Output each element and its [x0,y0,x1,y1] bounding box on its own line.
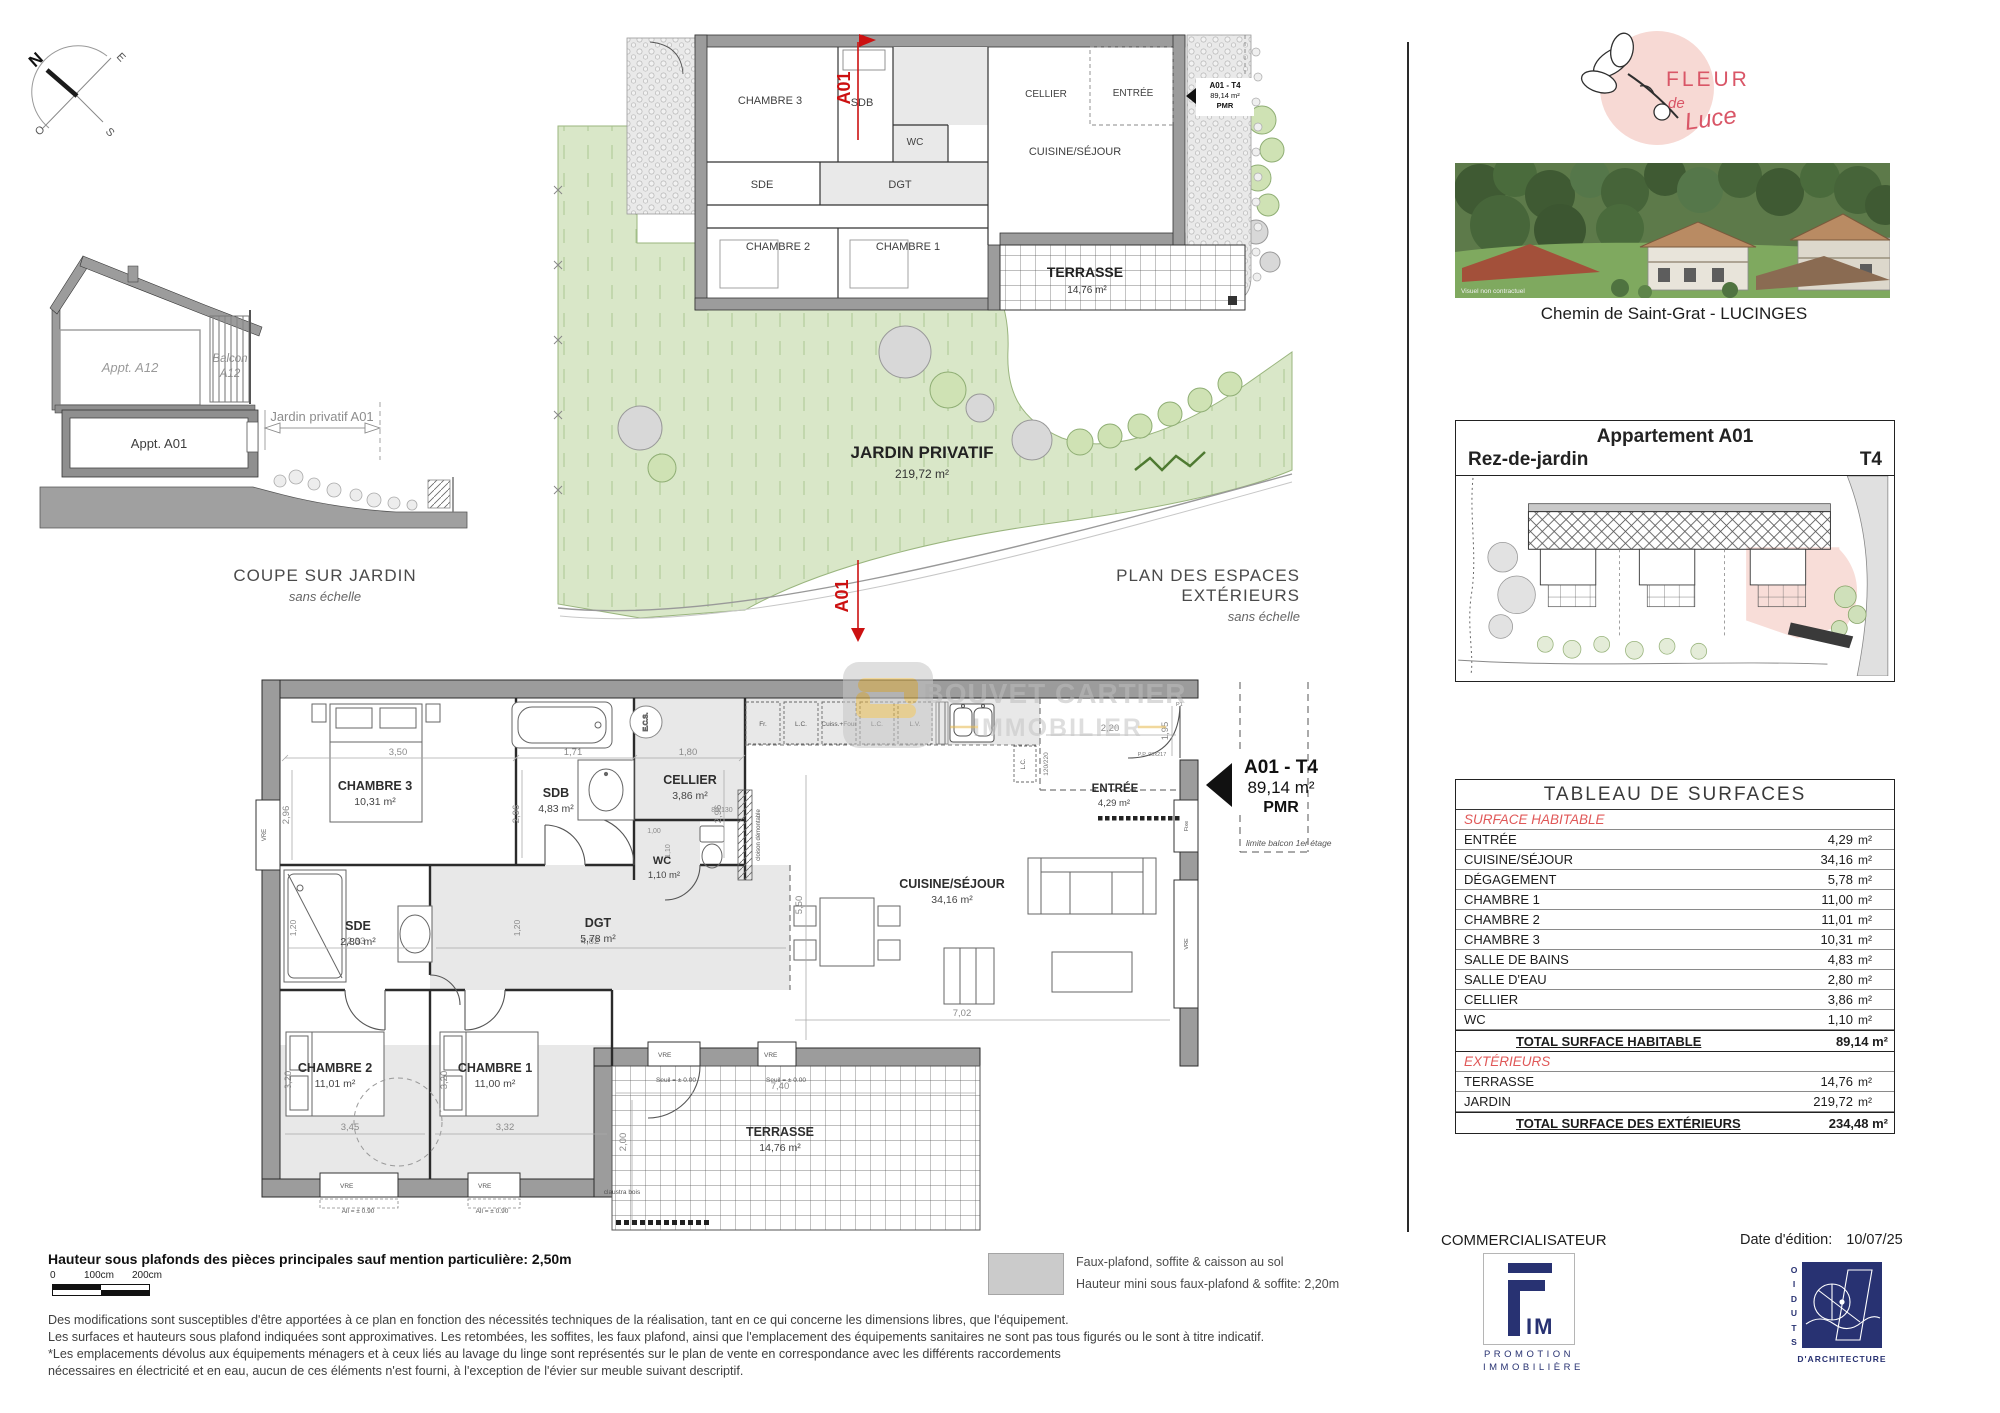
unit-tag: A01 - T4 89,14 m² PMR limite balcon 1er … [1206,682,1332,852]
table-section-row: SURFACE HABITABLE [1456,810,1894,830]
table-cell-value: 4,29 [1783,832,1853,847]
project-address: Chemin de Saint-Grat - LUCINGES [1455,304,1893,324]
surface-table: TABLEAU DE SURFACES SURFACE HABITABLEENT… [1455,779,1895,1134]
room-cellier-name: CELLIER [663,773,716,787]
allege-ch2: All = ± 0.90 [342,1208,375,1215]
water-heater-icon: E.C.S. [630,706,662,738]
vertical-divider [1407,42,1409,1232]
unit-tag-line3: PMR [1263,799,1299,816]
surface-table-rows: SURFACE HABITABLEENTRÉE4,29m²CUISINE/SÉJ… [1456,810,1894,1133]
table-cell-value: 2,80 [1783,972,1853,987]
studio-architecture-logo [1802,1262,1882,1348]
table-cell-unit: m² [1853,833,1894,847]
scale-bar-graphic [52,1284,150,1296]
table-row: JARDIN219,72m² [1456,1092,1894,1112]
table-cell-unit: m² [1853,1095,1894,1109]
fim-im-text: IM [1526,1314,1554,1339]
room-sdb-area: 4,83 m² [538,803,574,815]
room-chambre3-name: CHAMBRE 3 [338,779,412,793]
exterior-plan-subtitle: sans échelle [1000,609,1300,624]
dim-296-b: 2,96 [511,805,522,824]
entry-dashes [1098,816,1180,821]
table-cell-unit: m² [1853,973,1894,987]
legend-swatch [988,1253,1064,1295]
exterior-plan-caption: PLAN DES ESPACES EXTÉRIEURS sans échelle [1000,566,1300,624]
compass-north-label: N [25,49,47,71]
scale-tick-0: 0 [50,1270,56,1281]
ext-cuisine-label: CUISINE/SÉJOUR [1029,145,1121,158]
window-vre-left: VRE [262,829,268,841]
coupe-caption: COUPE SUR JARDIN sans échelle [175,566,475,604]
site-plan [1456,476,1890,676]
table-row: TERRASSE14,76m² [1456,1072,1894,1092]
disclaimer-line2: Les surfaces et hauteurs sous plafond in… [48,1329,1388,1346]
brand-fleur: FLEUR [1666,68,1750,91]
table-section-row: EXTÉRIEURS [1456,1052,1894,1072]
site-trees-left [1488,542,1536,638]
coupe-title: COUPE SUR JARDIN [175,566,475,586]
main-floor-plan: cloison démontable VRE VRE VRE VRE VRE F… [240,655,1360,1255]
table-row: CHAMBRE 111,00m² [1456,890,1894,910]
window-fixe-right: Fixe [1184,821,1190,831]
unit-card-level: Rez-de-jardin [1468,449,1588,471]
dim-120-220: 120/220 [1043,752,1050,776]
ext-sdb-label: SDB [851,97,874,109]
fim-logo: IM [1483,1253,1575,1345]
plot-boundary [1470,478,1474,674]
tv-unit-icon [944,948,994,1004]
unit-tag-line2: 89,14 m² [1247,778,1314,797]
ext-terrasse-area: 14,76 m² [1067,285,1107,296]
table-section-label: EXTÉRIEURS [1456,1054,1894,1069]
dim-332: 3,32 [496,1122,515,1133]
room-chambre1-area: 11,00 m² [475,1078,516,1090]
compass-south-label: S [103,126,117,140]
room-cuisine-name: CUISINE/SÉJOUR [899,876,1005,891]
table-cell-unit: m² [1853,933,1894,947]
seuil-1: Seuil = ± 0.00 [656,1077,696,1084]
ext-unit-tag-line2: 89,14 m² [1210,91,1240,100]
room-sde-area: 2,80 m² [340,936,376,948]
ground-section [40,487,467,528]
photo-caption: Visuel non contractuel [1461,288,1525,295]
dim-320-a: 3,20 [283,1071,294,1090]
ext-unit-tag-line1: A01 - T4 [1209,81,1241,90]
watermark-line1: BOUVET CARTIER [924,678,1187,709]
balcony-section: Balcon A12 [210,310,250,404]
site-ground-line [1458,660,1827,664]
room-wc-name: WC [653,855,671,867]
dim-120-b: 1,20 [512,919,522,936]
edition-date-value: 10/07/25 [1846,1232,1902,1248]
room-dgt-area: 5,78 m² [580,933,616,945]
scale-bar: 0 100cm 200cm [50,1270,190,1298]
sink-icon-sdb [578,760,634,820]
table-row: CUISINE/SÉJOUR34,16m² [1456,850,1894,870]
ceiling-height-note: Hauteur sous plafonds des pièces princip… [48,1251,572,1267]
scale-tick-100: 100cm [84,1270,114,1281]
claustra-label: claustra bois [604,1189,641,1196]
dining-table-icon [794,898,900,966]
studio-vertical-text: OIDUTS [1788,1265,1800,1347]
site-building [1528,512,1830,550]
table-row: DÉGAGEMENT5,78m² [1456,870,1894,890]
dim-296-a: 2,96 [281,806,292,825]
table-row: CHAMBRE 211,01m² [1456,910,1894,930]
room-cellier-area: 3,86 m² [672,790,708,802]
table-cell-unit: m² [1853,993,1894,1007]
dim-350: 3,50 [389,747,408,758]
table-row: ENTRÉE4,29m² [1456,830,1894,850]
window-vre-ch1: VRE [478,1183,492,1190]
unit-card: Appartement A01 Rez-de-jardin T4 [1455,420,1895,682]
kitchen-lc1-label: L.C. [795,721,807,728]
garden-label: JARDIN PRIVATIF [851,443,994,462]
dim-100: 1,00 [647,828,661,835]
limite-balcon-label: limite balcon 1er étage [1246,838,1332,848]
plan-sheet: N E S O Appt. A12 Balcon A12 [0,0,2000,1413]
room-dgt-name: DGT [585,916,612,930]
table-section-label: SURFACE HABITABLE [1456,812,1894,827]
ext-wc-label: WC [907,137,924,148]
ext-dgt-label: DGT [888,179,912,191]
dim-702: 7,02 [953,1008,972,1019]
ext-chambre3-label: CHAMBRE 3 [738,95,802,107]
commercialisateur-label: COMMERCIALISATEUR [1441,1232,1607,1249]
window-vre-sejour2: VRE [764,1052,778,1059]
dim-320-b: 3,20 [439,1071,450,1090]
brand-logo: FLEUR de Luce [1572,18,1752,160]
table-cell-value: 5,78 [1783,872,1853,887]
exterior-plan-title: PLAN DES ESPACES EXTÉRIEURS [1000,566,1300,606]
section-line-bottom: A01 [832,560,865,642]
table-cell-unit: m² [1853,953,1894,967]
table-cell-label: SALLE D'EAU [1456,972,1783,987]
table-cell-value: 11,01 [1783,912,1853,927]
compass-rose-icon: N E S O [15,30,145,150]
table-cell-label: DÉGAGEMENT [1456,872,1783,887]
balcony-label-line2: A12 [219,368,241,380]
room-entree-area: 4,29 m² [1098,798,1130,809]
window-vre-ch2: VRE [340,1183,354,1190]
window-vre-sejour1: VRE [658,1052,672,1059]
allege-ch1: All = ± 0.90 [476,1208,509,1215]
ext-entree-label: ENTRÉE [1113,86,1154,99]
ext-unit-tag-line3: PMR [1217,101,1234,110]
ext-cellier-label: CELLIER [1025,89,1067,100]
cloison-label: cloison démontable [756,808,762,860]
table-row: CELLIER3,86m² [1456,990,1894,1010]
table-total-value: 89,14 m² [1768,1034,1894,1049]
table-row: SALLE DE BAINS4,83m² [1456,950,1894,970]
dim-80-130: 80/130 [711,807,733,814]
ecs-label: E.C.S. [643,712,650,731]
window-vre-right: VRE [1184,938,1190,950]
room-entree-name: ENTRÉE [1092,782,1139,795]
table-cell-unit: m² [1853,853,1894,867]
fim-baseline: PROMOTION IMMOBILIÈRE [1483,1348,1575,1374]
scale-seg-4 [101,1290,149,1295]
table-cell-unit: m² [1853,1075,1894,1089]
section-mark-bottom: A01 [832,579,852,612]
bathtub-icon [512,702,612,748]
table-cell-value: 219,72 [1783,1094,1853,1109]
unit-tag-line1: A01 - T4 [1244,757,1318,778]
site-units [1540,549,1805,585]
table-cell-unit: m² [1853,873,1894,887]
room-chambre2-name: CHAMBRE 2 [298,1061,372,1075]
unit-card-type: T4 [1860,449,1882,471]
sofa-icon [1028,858,1156,914]
compass-east-label: E [114,51,128,65]
garden-area: 219,72 m² [895,467,949,481]
entrance-door-size: P.P. 93x217 [1138,752,1167,758]
table-row: SALLE D'EAU2,80m² [1456,970,1894,990]
table-cell-label: CHAMBRE 2 [1456,912,1783,927]
room-cuisine-area: 34,16 m² [931,894,973,906]
table-total-value: 234,48 m² [1768,1116,1894,1131]
garden-section-drawing: Appt. A12 Balcon A12 Appt. A01 Jardin pr… [35,200,505,530]
exterior-spaces-plan: CHAMBRE 3 SDB CELLIER WC SDE DGT CHAMBRE… [545,25,1305,655]
lower-apartment-label: Appt. A01 [131,436,187,451]
kitchen-fr-label: Fr. [759,721,767,728]
project-photo: Visuel non contractuel [1455,163,1890,298]
table-cell-value: 3,86 [1783,992,1853,1007]
table-total-label: TOTAL SURFACE HABITABLE [1456,1034,1768,1049]
garden-dim-label: Jardin privatif A01 [270,409,373,424]
disclaimer-line1: Des modifications sont susceptibles d'êt… [48,1312,1388,1329]
legend-line2: Hauteur mini sous faux-plafond & soffite… [1076,1277,1339,1291]
fence-icon [428,477,453,512]
table-total-row: TOTAL SURFACE DES EXTÉRIEURS234,48 m² [1456,1112,1894,1133]
room-chambre1-name: CHAMBRE 1 [458,1061,532,1075]
site-building-roofline [1528,504,1830,512]
ext-terrasse-label: TERRASSE [1047,264,1123,280]
legend-line1: Faux-plafond, soffite & caisson au sol [1076,1255,1284,1269]
table-cell-value: 34,16 [1783,852,1853,867]
table-cell-value: 14,76 [1783,1074,1853,1089]
room-sdb-name: SDB [543,786,569,800]
table-row: CHAMBRE 310,31m² [1456,930,1894,950]
kitchen-lc-tall-label: L.C. [1021,758,1027,769]
coupe-subtitle: sans échelle [175,589,475,604]
disclaimer-line3: *Les emplacements dévolus aux équipement… [48,1346,1388,1363]
sink-icon-sde [398,906,432,962]
dim-550: 5,50 [794,896,805,915]
room-terrasse-area: 14,76 m² [759,1142,801,1154]
coffee-table-icon [1052,952,1132,992]
section-mark-top: A01 [834,71,854,104]
fim-baseline-line1: PROMOTION [1483,1348,1575,1361]
dim-120-a: 1,20 [288,919,298,936]
table-cell-label: CHAMBRE 3 [1456,932,1783,947]
room-wc-area: 1,10 m² [648,870,680,881]
room-chambre2-area: 11,01 m² [315,1078,356,1090]
table-cell-label: WC [1456,1012,1783,1027]
table-cell-value: 4,83 [1783,952,1853,967]
table-cell-unit: m² [1853,913,1894,927]
table-cell-label: ENTRÉE [1456,832,1783,847]
table-cell-label: CUISINE/SÉJOUR [1456,852,1783,867]
watermark: BOUVET CARTIER IMMOBILIER [843,662,1186,748]
table-cell-value: 10,31 [1783,932,1853,947]
dim-180: 1,80 [679,747,698,758]
surface-table-title: TABLEAU DE SURFACES [1456,780,1894,810]
scale-tick-200: 200cm [132,1270,162,1281]
balcony-label-line1: Balcon [212,353,247,365]
room-sde-name: SDE [345,919,371,933]
table-cell-value: 11,00 [1783,892,1853,907]
disclaimer-line4: nécessaires en électricité et en eau, au… [48,1363,1388,1380]
room-terrasse-name: TERRASSE [746,1125,814,1139]
ext-chambre2-label: CHAMBRE 2 [746,241,810,253]
dim-171: 1,71 [564,747,583,758]
seuil-2: Seuil = ± 0.00 [766,1077,806,1084]
ext-chambre1-label: CHAMBRE 1 [876,241,940,253]
unit-card-title: Appartement A01 [1456,421,1894,448]
upper-apartment-label: Appt. A12 [101,360,159,375]
dim-200: 2,00 [618,1133,629,1152]
table-cell-label: CHAMBRE 1 [1456,892,1783,907]
studio-architecture-label: D'ARCHITECTURE [1790,1354,1894,1364]
unit-arrow-icon [1206,763,1232,807]
scale-seg-3 [53,1290,101,1295]
dim-195: 1,95 [1160,722,1171,741]
pebble-courtyard [627,38,697,214]
table-total-label: TOTAL SURFACE DES EXTÉRIEURS [1456,1116,1768,1131]
table-cell-label: CELLIER [1456,992,1783,1007]
edition-date-label: Date d'édition: [1740,1232,1832,1248]
table-cell-unit: m² [1853,893,1894,907]
table-cell-label: JARDIN [1456,1094,1783,1109]
site-trees-bottom [1537,636,1706,659]
ext-sde-label: SDE [751,179,774,191]
fim-baseline-line2: IMMOBILIÈRE [1483,1361,1575,1374]
site-terraces [1548,585,1805,607]
room-chambre3-area: 10,31 m² [354,796,396,808]
table-cell-value: 1,10 [1783,1012,1853,1027]
table-row: WC1,10m² [1456,1010,1894,1030]
edition-date: Date d'édition: 10/07/25 [1740,1232,1903,1248]
table-cell-unit: m² [1853,1013,1894,1027]
lower-apartment-section: Appt. A01 [62,410,258,477]
disclaimer-block: Des modifications sont susceptibles d'êt… [48,1312,1388,1380]
table-cell-label: TERRASSE [1456,1074,1783,1089]
brand-luce: Luce [1683,102,1738,136]
table-cell-label: SALLE DE BAINS [1456,952,1783,967]
toilet-icon [700,826,724,868]
watermark-line2: IMMOBILIER [973,714,1143,742]
table-total-row: TOTAL SURFACE HABITABLE89,14 m² [1456,1030,1894,1052]
dim-345: 3,45 [341,1122,360,1133]
